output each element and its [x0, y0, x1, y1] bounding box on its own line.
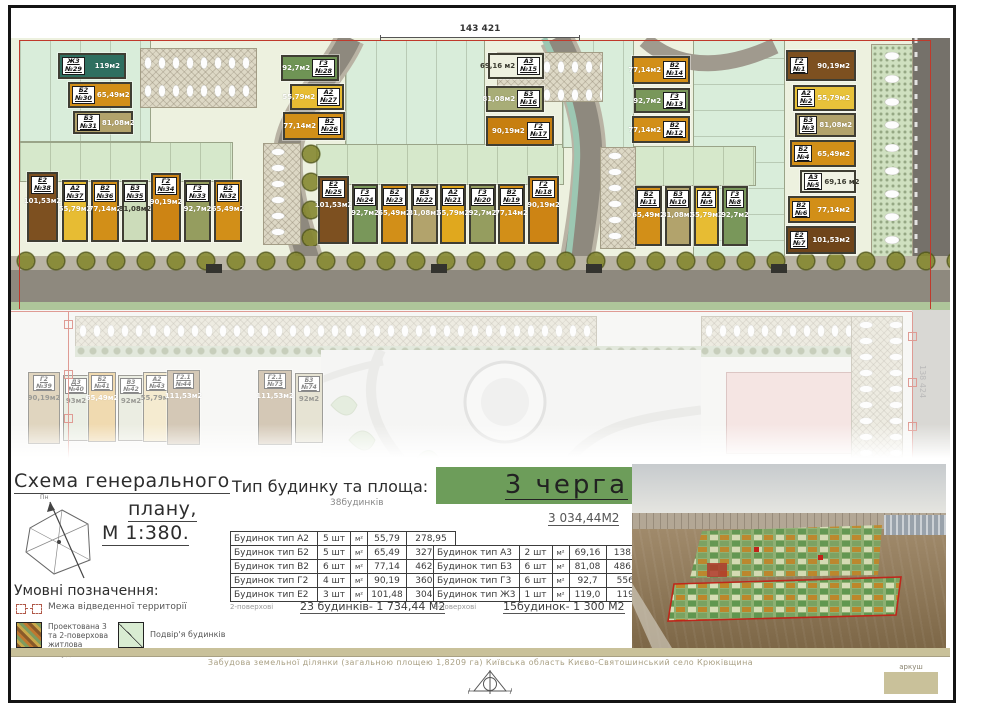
- building-block: Г3№8 92,7м2: [722, 186, 748, 246]
- building-area: 119м2: [87, 62, 120, 70]
- table-footnote: 2-поверхові: [230, 603, 273, 611]
- building-area: 111,53м2: [256, 392, 294, 400]
- building-area: 55,79м2: [59, 205, 92, 213]
- building-block: А2№21 55,79м2: [440, 184, 466, 244]
- building-area: 101,53м2: [810, 236, 850, 244]
- building-area: 81,08м2: [482, 95, 515, 103]
- building-block: Г2№18 90,19м2: [528, 176, 559, 244]
- table-row: Будинок тип Б3 6 шт м² 81,08 486,48: [434, 560, 654, 574]
- building-tag: Б2№11: [637, 190, 660, 208]
- table-row: Будинок тип Г2 4 шт м² 90,19 360,76: [231, 574, 456, 588]
- table-row: Будинок тип А2 5 шт м² 55,79 278,95: [231, 532, 456, 546]
- scheme-title-line2: плану,: [128, 498, 197, 522]
- building-block: В2№19 77,14м2: [498, 184, 525, 244]
- building-area: 92,7м2: [351, 209, 379, 217]
- building-area: 65,49м2: [814, 150, 850, 158]
- building-block: Г3№33 92,7м2: [184, 180, 211, 242]
- building-tag: В3№42: [120, 378, 142, 394]
- building-block: Е2№25 101,53м2: [318, 176, 349, 244]
- building-tag: Г2№34: [155, 177, 178, 195]
- phase-title: 3 черга: [505, 471, 628, 501]
- housing-legend-icon: [16, 622, 42, 648]
- building-block: А2№27 55,79м2: [290, 84, 344, 110]
- building-block: В2№14 77,14м2: [632, 56, 690, 84]
- table-row: Будинок тип Б2 5 шт м² 65,49 327,45: [231, 546, 456, 560]
- building-tag: Б2№4: [794, 145, 812, 163]
- building-area: 77,14м2: [812, 206, 850, 214]
- footer-bar: [11, 648, 950, 657]
- building-area: 65,49м2: [378, 209, 411, 217]
- building-tag: Е2№38: [31, 176, 54, 194]
- building-tag: Г3№33: [186, 184, 209, 202]
- building-tag: Б3№74: [298, 376, 320, 392]
- building-area: 101,53м2: [315, 201, 353, 209]
- building-block: В2№36 77,14м2: [91, 180, 119, 242]
- building-tag: А2№43: [146, 375, 168, 391]
- table-summary: 23 будинків- 1 734,44 М2: [300, 600, 445, 614]
- boundary-legend-icon: [16, 603, 42, 615]
- building-block: Б2№32 65,49м2: [214, 180, 242, 242]
- building-area: 92м2: [121, 397, 141, 405]
- legend-label: Подвір'я будинків: [150, 630, 225, 640]
- building-tag: В2№19: [500, 188, 523, 206]
- building-area: 90,19м2: [28, 394, 61, 402]
- building-block: Г2№34 90,19м2: [151, 173, 181, 242]
- building-area: 93м2: [66, 397, 86, 405]
- building-area: 55,79м2: [437, 209, 470, 217]
- building-block: Г3№20 92,7м2: [469, 184, 496, 244]
- legend-heading: Умовні позначення:: [14, 583, 159, 599]
- table-2storey: Будинок тип А2 5 шт м² 55,79 278,95 Буди…: [230, 531, 456, 602]
- building-block: Б3№31 81,08м2: [73, 111, 133, 134]
- building-area: 77,14м2: [628, 66, 661, 74]
- building-area: 90,19м2: [810, 62, 850, 70]
- building-tag: А2№37: [64, 184, 87, 202]
- building-block: Б3№3 81,08м2: [795, 113, 856, 137]
- building-area: 77,14м2: [628, 126, 661, 134]
- building-area: 92м2: [299, 395, 319, 403]
- building-area: 81,08м2: [819, 121, 852, 129]
- building-block: Б2№11 65,49м2: [635, 186, 662, 246]
- building-tag: Г2№39: [33, 375, 55, 391]
- building-block: В2№26 77,14м2: [283, 112, 345, 140]
- building-tag: В2№6: [792, 201, 810, 219]
- project-description: Забудова земельної ділянки (загальною пл…: [11, 658, 950, 667]
- building-tag: В2№26: [318, 117, 341, 135]
- building-tag: Г3№20: [471, 188, 494, 206]
- table-summary: 15будинок- 1 300 М2: [503, 600, 625, 614]
- aerial-photo: [632, 463, 946, 648]
- site-plan: Ж3№29 119м2 Б2№30 65,49м2 Б3№31 81,08м2 …: [11, 38, 950, 310]
- building-tag: Г2№1: [790, 57, 808, 75]
- building-area: 65,49м2: [212, 205, 245, 213]
- building-tag: Б3№31: [77, 114, 100, 132]
- building-block: Г2№17 90,19м2: [486, 116, 554, 146]
- legend-label: Межа відведенної территорії: [48, 602, 187, 613]
- building-tag: Е2№7: [790, 231, 808, 249]
- building-block: В2№6 77,14м2: [788, 196, 856, 223]
- top-dimension-line: [380, 37, 580, 38]
- building-block: Б3№35 81,08м2: [122, 180, 148, 242]
- building-tag: А2№9: [697, 190, 715, 208]
- building-area: 90,19м2: [527, 201, 560, 209]
- building-area: 90,19м2: [492, 127, 525, 135]
- building-tag: А2№21: [442, 188, 465, 206]
- building-tag: А3№5: [804, 173, 822, 191]
- phase-banner: 3 черга: [436, 467, 636, 504]
- building-area: 101,53м2: [24, 197, 62, 205]
- building-area: 65,49м2: [86, 394, 119, 402]
- building-tag: Г3№28: [312, 59, 335, 77]
- phase-area-total: 3 034,44М2: [548, 511, 619, 526]
- table-subheading: 38будинків: [330, 498, 384, 508]
- compass-north-label: Пн: [40, 494, 48, 501]
- table-3storey: Будинок тип А3 2 шт м² 69,16 138,32 Буди…: [433, 545, 654, 602]
- sheet-number-box: [884, 672, 938, 694]
- building-block: Е2№38 101,53м2: [27, 172, 58, 242]
- building-tag: Б2№23: [383, 188, 406, 206]
- building-area: 77,14м2: [283, 122, 316, 130]
- legend-item-yard: Подвір'я будинків: [118, 622, 225, 648]
- north-compass: Пн: [16, 498, 112, 582]
- building-block: Е2№7 101,53м2: [786, 226, 856, 254]
- scheme-title-line1: Схема генерального: [14, 470, 230, 494]
- building-area: 81,08м2: [119, 205, 152, 213]
- right-dimension-label: 138 424: [918, 365, 927, 398]
- legend-item-boundary: Межа відведенної территорії: [16, 602, 187, 615]
- building-block: Б3№16 81,08м2: [486, 86, 544, 112]
- building-tag: Б2№30: [72, 86, 95, 104]
- building-area: 92,7м2: [721, 211, 749, 219]
- building-area: 55,79м2: [690, 211, 723, 219]
- building-tag: Г2№18: [532, 180, 555, 198]
- building-block: Б3№10 81,08м2: [665, 186, 691, 246]
- building-tag: Е2№25: [322, 180, 345, 198]
- building-area: 90,19м2: [150, 198, 183, 206]
- top-dimension-label: 143 421: [380, 24, 580, 34]
- building-area: 92,7м2: [282, 64, 310, 72]
- building-tag: В2№36: [94, 184, 117, 202]
- building-tag: Г2.1№73: [264, 373, 286, 389]
- building-area: 111,53м2: [165, 392, 203, 400]
- building-tag: Г2.1№44: [173, 373, 195, 389]
- building-area: 69,16 м2: [824, 178, 859, 186]
- building-tag: Б3№16: [517, 90, 540, 108]
- building-tag: А3№15: [517, 57, 540, 75]
- building-tag: В2№14: [663, 61, 686, 79]
- building-tag: Б2№41: [91, 375, 113, 391]
- building-block: Б2№23 65,49м2: [381, 184, 408, 244]
- photo-plan-overlay: [632, 463, 946, 648]
- building-block: В2№12 77,14м2: [632, 116, 690, 143]
- building-area: 92,7м2: [184, 205, 212, 213]
- table-row: Будинок тип А3 2 шт м² 69,16 138,32: [434, 546, 654, 560]
- building-area: 77,14м2: [89, 205, 122, 213]
- building-block: А3№5 69,16 м2: [800, 170, 856, 193]
- building-block: Б3№22 81,08м2: [411, 184, 438, 244]
- building-area: 55,79м2: [282, 93, 315, 101]
- building-area: 65,49м2: [97, 91, 130, 99]
- building-tag: А2№27: [317, 88, 340, 106]
- scheme-title-line3: М 1:380.: [102, 522, 189, 546]
- firm-logo: [468, 670, 512, 696]
- building-tag: В2№12: [663, 121, 686, 139]
- building-area: 92,7м2: [633, 97, 661, 105]
- building-tag: Б3№10: [667, 190, 690, 208]
- building-tag: Г3№8: [726, 190, 744, 208]
- building-block: Г3№28 92,7м2: [281, 55, 339, 81]
- building-block: Г3№13 92,7м2: [634, 88, 690, 113]
- building-area: 55,79м2: [817, 94, 850, 102]
- table-row: Будинок тип Г3 6 шт м² 92,7 556,2: [434, 574, 654, 588]
- building-block: А3№15 69,16 м2: [488, 53, 544, 79]
- building-area: 77,14м2: [495, 209, 528, 217]
- table-heading: Тип будинку та площа:: [232, 477, 428, 496]
- building-block: Б2№30 65,49м2: [68, 82, 132, 108]
- building-area: 65,49м2: [632, 211, 665, 219]
- fade-overlay: [11, 424, 950, 464]
- building-block: А2№9 55,79м2: [694, 186, 719, 246]
- building-tag: Б2№32: [217, 184, 240, 202]
- building-block: А2№37 55,79м2: [62, 180, 88, 242]
- building-block: Г3№24 92,7м2: [352, 184, 378, 244]
- building-tag: Ж3№29: [62, 57, 85, 75]
- building-block: А2№2 55,79м2: [793, 85, 856, 111]
- building-block: Ж3№29 119м2: [58, 53, 126, 79]
- table-row: Будинок тип В2 6 шт м² 77,14 462,84: [231, 560, 456, 574]
- building-tag: Б3№22: [413, 188, 436, 206]
- building-tag: Д3№40: [65, 378, 87, 394]
- building-area: 69,16 м2: [480, 62, 515, 70]
- building-tag: Б3№3: [799, 116, 817, 134]
- yard-legend-icon: [118, 622, 144, 648]
- building-tag: Г2№17: [527, 122, 550, 140]
- building-tag: А2№2: [797, 89, 815, 107]
- building-tag: Г3№13: [663, 92, 686, 110]
- buildings-layer: Ж3№29 119м2 Б2№30 65,49м2 Б3№31 81,08м2 …: [11, 38, 950, 310]
- table-footnote: 3-поверхові: [433, 603, 476, 611]
- building-block: Г2№1 90,19м2: [786, 50, 856, 81]
- building-tag: Г3№24: [354, 188, 377, 206]
- building-area: 81,08м2: [102, 119, 135, 127]
- building-area: 92,7м2: [469, 209, 497, 217]
- sheet-label: аркуш: [884, 663, 938, 671]
- building-tag: Б3№35: [124, 184, 147, 202]
- building-block: Б2№4 65,49м2: [790, 140, 856, 167]
